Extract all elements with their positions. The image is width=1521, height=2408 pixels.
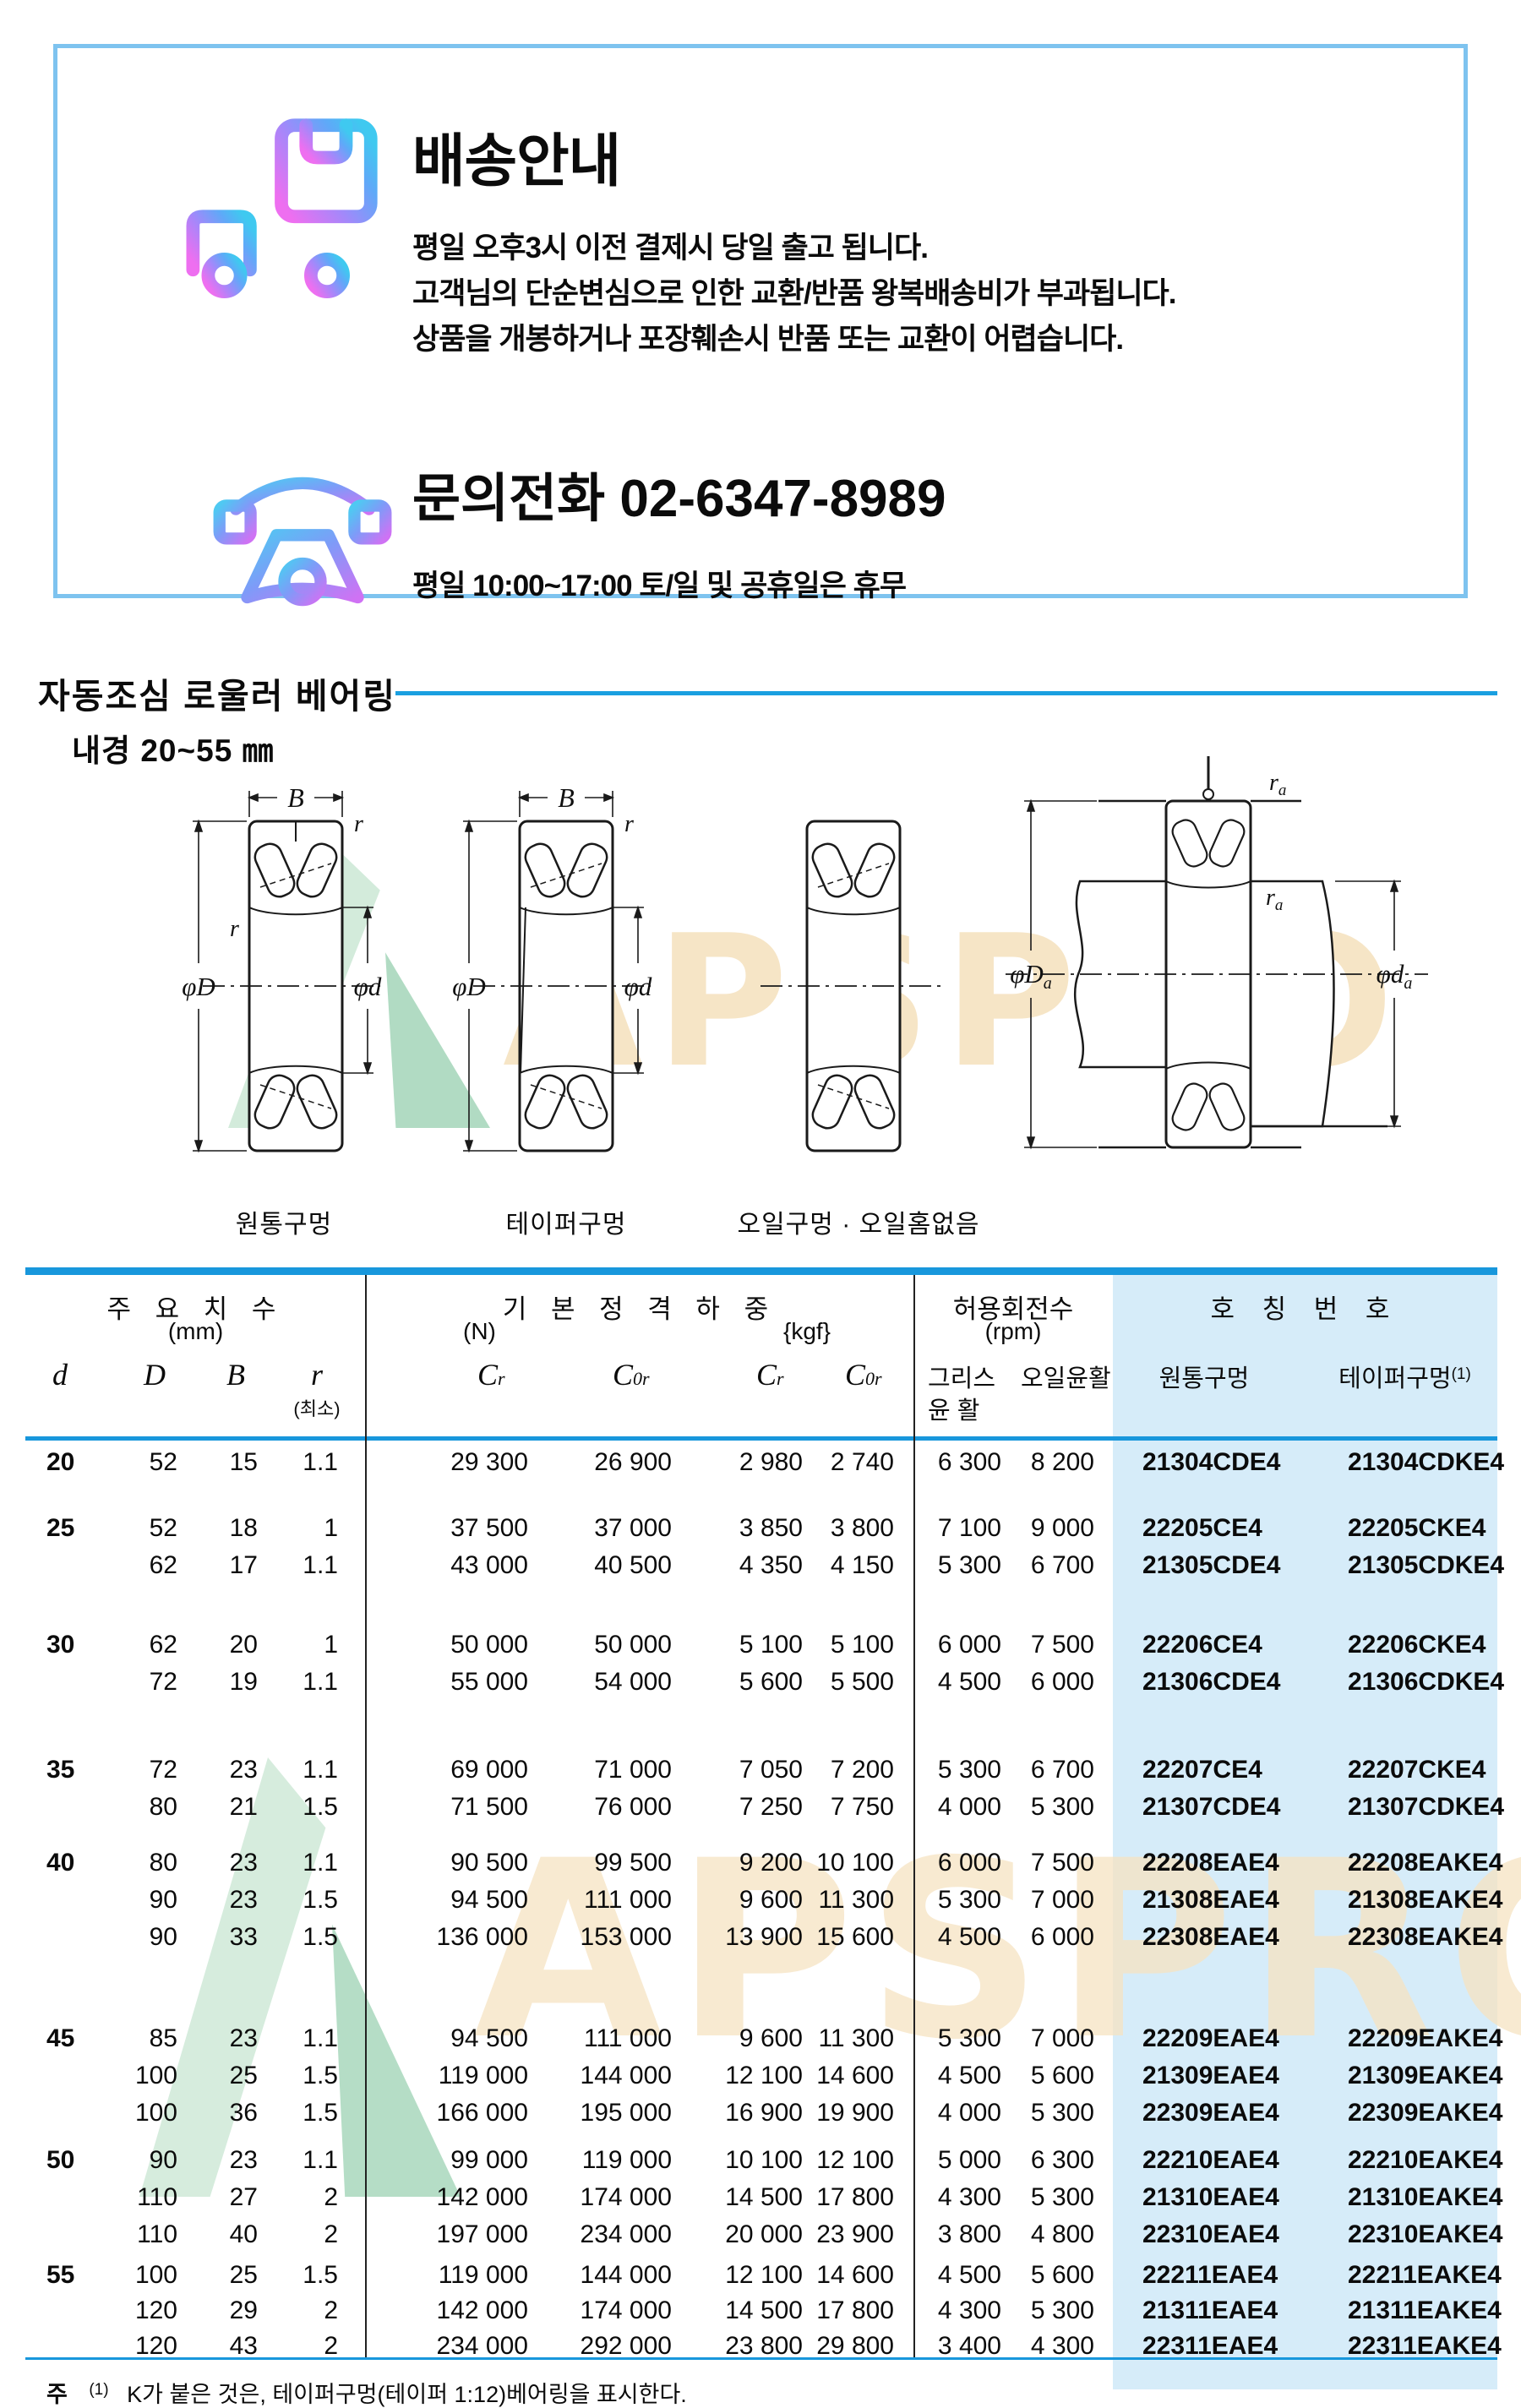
cell-taper: 22309EAKE4 [1348, 2099, 1521, 2127]
cell-B: 40 [165, 2220, 258, 2249]
table-row: 4080231.190 50099 5009 20010 1006 0007 5… [0, 1849, 1521, 1886]
col-symbol-r: r [311, 1357, 323, 1392]
cell-D: 62 [68, 1631, 177, 1659]
cell-cyl: 22206CE4 [1142, 1631, 1337, 1659]
cell-taper: 21307CDKE4 [1348, 1793, 1521, 1822]
cell-D: 52 [68, 1514, 177, 1543]
cell-B: 18 [165, 1514, 258, 1543]
cell-B: 43 [165, 2332, 258, 2361]
cell-D: 100 [68, 2261, 177, 2290]
cell-taper: 21304CDKE4 [1348, 1448, 1521, 1477]
cell-D: 85 [68, 2024, 177, 2053]
cell-cyl: 22208EAE4 [1142, 1849, 1337, 1877]
col-label-cyl-bore: 원통구멍 [1124, 1359, 1284, 1394]
cell-c0r_n: 40 500 [520, 1551, 672, 1580]
cell-D: 90 [68, 1923, 177, 1952]
cell-c0r_kgf: 10 100 [750, 1849, 894, 1877]
table-row: 90331.5136 000153 00013 90015 6004 5006 … [0, 1923, 1521, 1960]
cell-B: 27 [165, 2183, 258, 2212]
cell-D: 90 [68, 2146, 177, 2175]
cell-r: 1.1 [245, 2146, 338, 2175]
cell-oil: 6 000 [976, 1668, 1094, 1697]
table-row: 306220150 00050 0005 1005 1006 0007 5002… [0, 1631, 1521, 1668]
table-row: 4585231.194 500111 0009 60011 3005 3007 … [0, 2024, 1521, 2062]
cell-c0r_n: 37 000 [520, 1514, 672, 1543]
cell-c0r_n: 195 000 [520, 2099, 672, 2127]
cell-r: 1.1 [245, 1849, 338, 1877]
table-row: 72191.155 00054 0005 6005 5004 5006 0002… [0, 1668, 1521, 1705]
cell-cr_n: 43 000 [376, 1551, 528, 1580]
cell-taper: 22207CKE4 [1348, 1756, 1521, 1784]
cell-cyl: 22311EAE4 [1142, 2332, 1337, 2361]
cell-c0r_kgf: 15 600 [750, 1923, 894, 1952]
cell-cyl: 21309EAE4 [1142, 2062, 1337, 2090]
table-row: 2052151.129 30026 9002 9802 7406 3008 20… [0, 1448, 1521, 1485]
table-header-rule [25, 1436, 1497, 1441]
cell-r: 1.5 [245, 1793, 338, 1822]
cell-D: 120 [68, 2296, 177, 2325]
table-row: 255218137 50037 0003 8503 8007 1009 0002… [0, 1514, 1521, 1551]
cell-r: 1.1 [245, 1448, 338, 1477]
header-bearing-no: 호 칭 번 호 [1113, 1288, 1497, 1326]
cell-c0r_n: 119 000 [520, 2146, 672, 2175]
cell-D: 90 [68, 1886, 177, 1915]
cell-D: 62 [68, 1551, 177, 1580]
col-label-grease-2: 윤 활 [928, 1391, 979, 1426]
cell-oil: 9 000 [976, 1514, 1094, 1543]
cell-cr_n: 55 000 [376, 1668, 528, 1697]
cell-B: 23 [165, 1886, 258, 1915]
col-symbol-cr-n: Cr [477, 1357, 505, 1392]
cell-c0r_n: 71 000 [520, 1756, 672, 1784]
cell-oil: 6 700 [976, 1756, 1094, 1784]
cell-cr_n: 50 000 [376, 1631, 528, 1659]
cell-cyl: 21310EAE4 [1142, 2183, 1337, 2212]
col-label-taper-bore: 테이퍼구멍(1) [1314, 1359, 1496, 1394]
cell-oil: 6 700 [976, 1551, 1094, 1580]
cell-D: 80 [68, 1793, 177, 1822]
cell-taper: 21308EAKE4 [1348, 1886, 1521, 1915]
cell-D: 110 [68, 2220, 177, 2249]
cell-D: 52 [68, 1448, 177, 1477]
cell-c0r_kgf: 5 100 [750, 1631, 894, 1659]
cell-c0r_kgf: 3 800 [750, 1514, 894, 1543]
col-label-grease-1: 그리스 [928, 1359, 995, 1394]
cell-oil: 5 300 [976, 2099, 1094, 2127]
cell-cr_n: 234 000 [376, 2332, 528, 2361]
cell-c0r_n: 153 000 [520, 1923, 672, 1952]
cell-B: 25 [165, 2062, 258, 2090]
cell-B: 19 [165, 1668, 258, 1697]
cell-cr_n: 142 000 [376, 2183, 528, 2212]
cell-c0r_n: 76 000 [520, 1793, 672, 1822]
table-row: 62171.143 00040 5004 3504 1505 3006 7002… [0, 1551, 1521, 1588]
cell-oil: 8 200 [976, 1448, 1094, 1477]
cell-c0r_kgf: 11 300 [750, 1886, 894, 1915]
col-symbol-c0r-n: C0r [613, 1357, 650, 1392]
cell-cr_n: 99 000 [376, 2146, 528, 2175]
cell-cr_n: 119 000 [376, 2261, 528, 2290]
cell-B: 29 [165, 2296, 258, 2325]
table-row: 120292142 000174 00014 50017 8004 3005 3… [0, 2296, 1521, 2334]
cell-B: 23 [165, 1849, 258, 1877]
table-row: 5090231.199 000119 00010 10012 1005 0006… [0, 2146, 1521, 2183]
cell-oil: 4 800 [976, 2220, 1094, 2249]
cell-c0r_kgf: 12 100 [750, 2146, 894, 2175]
table-row: 110402197 000234 00020 00023 9003 8004 8… [0, 2220, 1521, 2258]
cell-cyl: 22205CE4 [1142, 1514, 1337, 1543]
cell-B: 21 [165, 1793, 258, 1822]
cell-c0r_kgf: 4 150 [750, 1551, 894, 1580]
cell-taper: 22311EAKE4 [1348, 2332, 1521, 2361]
cell-D: 100 [68, 2062, 177, 2090]
cell-oil: 7 500 [976, 1849, 1094, 1877]
cell-cr_n: 94 500 [376, 1886, 528, 1915]
cell-c0r_n: 144 000 [520, 2261, 672, 2290]
cell-B: 15 [165, 1448, 258, 1477]
cell-r: 1.5 [245, 2261, 338, 2290]
cell-cr_n: 29 300 [376, 1448, 528, 1477]
cell-cyl: 21311EAE4 [1142, 2296, 1337, 2325]
cell-r: 1.1 [245, 1551, 338, 1580]
cell-taper: 22308EAKE4 [1348, 1923, 1521, 1952]
cell-c0r_kgf: 5 500 [750, 1668, 894, 1697]
cell-c0r_kgf: 2 740 [750, 1448, 894, 1477]
col-symbol-c0r-kgf: C0r [845, 1357, 882, 1392]
cell-oil: 7 500 [976, 1631, 1094, 1659]
cell-D: 120 [68, 2332, 177, 2361]
cell-cyl: 22211EAE4 [1142, 2261, 1337, 2290]
footnote-text: K가 붙은 것은, 테이퍼구멍(테이퍼 1:12)베어링을 표시한다. [127, 2382, 687, 2407]
cell-taper: 21306CDKE4 [1348, 1668, 1521, 1697]
cell-cr_n: 136 000 [376, 1923, 528, 1952]
table-row: 100361.5166 000195 00016 90019 9004 0005… [0, 2099, 1521, 2136]
cell-r: 1.1 [245, 2024, 338, 2053]
cell-cyl: 21306CDE4 [1142, 1668, 1337, 1697]
cell-c0r_n: 26 900 [520, 1448, 672, 1477]
cell-B: 17 [165, 1551, 258, 1580]
cell-taper: 22206CKE4 [1348, 1631, 1521, 1659]
cell-r: 1.1 [245, 1668, 338, 1697]
cell-cyl: 21308EAE4 [1142, 1886, 1337, 1915]
cell-taper: 22211EAKE4 [1348, 2261, 1521, 2290]
cell-cyl: 21305CDE4 [1142, 1551, 1337, 1580]
cell-c0r_n: 111 000 [520, 1886, 672, 1915]
cell-r: 2 [245, 2183, 338, 2212]
cell-cr_n: 166 000 [376, 2099, 528, 2127]
cell-taper: 22210EAKE4 [1348, 2146, 1521, 2175]
cell-c0r_n: 174 000 [520, 2183, 672, 2212]
cell-r: 1 [245, 1631, 338, 1659]
cell-taper: 21305CDKE4 [1348, 1551, 1521, 1580]
cell-D: 100 [68, 2099, 177, 2127]
footnote-ref: (1) [89, 2381, 108, 2399]
cell-D: 110 [68, 2183, 177, 2212]
cell-B: 23 [165, 2146, 258, 2175]
cell-c0r_n: 111 000 [520, 2024, 672, 2053]
cell-taper: 22310EAKE4 [1348, 2220, 1521, 2249]
col-symbol-B: B [226, 1357, 245, 1392]
cell-c0r_kgf: 7 750 [750, 1793, 894, 1822]
cell-c0r_kgf: 14 600 [750, 2261, 894, 2290]
cell-r: 1.5 [245, 2099, 338, 2127]
cell-c0r_kgf: 17 800 [750, 2296, 894, 2325]
page: 배송안내 평일 오후3시 이전 결제시 당일 출고 됩니다. 고객님의 단순변심… [0, 0, 1521, 2408]
cell-r: 1.5 [245, 1923, 338, 1952]
cell-B: 33 [165, 1923, 258, 1952]
cell-taper: 22209EAKE4 [1348, 2024, 1521, 2053]
cell-oil: 5 300 [976, 1793, 1094, 1822]
cell-r: 2 [245, 2296, 338, 2325]
cell-D: 72 [68, 1668, 177, 1697]
cell-taper: 21310EAKE4 [1348, 2183, 1521, 2212]
cell-cyl: 22308EAE4 [1142, 1923, 1337, 1952]
header-unit-n: (N) [463, 1318, 496, 1345]
col-symbol-D: D [144, 1357, 166, 1392]
cell-cyl: 22209EAE4 [1142, 2024, 1337, 2053]
cell-cr_n: 37 500 [376, 1514, 528, 1543]
table-row: 3572231.169 00071 0007 0507 2005 3006 70… [0, 1756, 1521, 1793]
cell-cyl: 22309EAE4 [1142, 2099, 1337, 2127]
table-row: 80211.571 50076 0007 2507 7504 0005 3002… [0, 1793, 1521, 1830]
cell-oil: 4 300 [976, 2332, 1094, 2361]
cell-B: 36 [165, 2099, 258, 2127]
cell-c0r_n: 50 000 [520, 1631, 672, 1659]
table-row: 55100251.5119 000144 00012 10014 6004 50… [0, 2261, 1521, 2298]
col-label-oil: 오일윤활 [1021, 1359, 1111, 1394]
cell-cyl: 21307CDE4 [1142, 1793, 1337, 1822]
cell-r: 1.1 [245, 1756, 338, 1784]
cell-r: 2 [245, 2332, 338, 2361]
cell-cyl: 21304CDE4 [1142, 1448, 1337, 1477]
cell-oil: 6 300 [976, 2146, 1094, 2175]
cell-oil: 7 000 [976, 2024, 1094, 2053]
cell-c0r_kgf: 17 800 [750, 2183, 894, 2212]
cell-cyl: 22210EAE4 [1142, 2146, 1337, 2175]
footnote-mark: 주 [46, 2382, 68, 2407]
col-symbol-d: d [52, 1357, 68, 1392]
cell-cr_n: 197 000 [376, 2220, 528, 2249]
header-speed-unit: (rpm) [913, 1318, 1113, 1345]
cell-cyl: 22207CE4 [1142, 1756, 1337, 1784]
table-layer: 주 요 치 수 (mm) 기 본 정 격 하 중 (N) {kgf} 허용회전수… [0, 0, 1521, 2408]
cell-oil: 7 000 [976, 1886, 1094, 1915]
cell-cyl: 22310EAE4 [1142, 2220, 1337, 2249]
table-row: 100251.5119 000144 00012 10014 6004 5005… [0, 2062, 1521, 2099]
cell-r: 2 [245, 2220, 338, 2249]
cell-cr_n: 90 500 [376, 1849, 528, 1877]
cell-c0r_n: 174 000 [520, 2296, 672, 2325]
table-row: 90231.594 500111 0009 60011 3005 3007 00… [0, 1886, 1521, 1923]
table-row: 110272142 000174 00014 50017 8004 3005 3… [0, 2183, 1521, 2220]
header-unit-kgf: {kgf} [760, 1318, 853, 1345]
cell-D: 80 [68, 1849, 177, 1877]
cell-oil: 5 600 [976, 2261, 1094, 2290]
cell-c0r_kgf: 11 300 [750, 2024, 894, 2053]
table-row: 120432234 000292 00023 80029 8003 4004 3… [0, 2332, 1521, 2369]
footnote: 주 (1) K가 붙은 것은, 테이퍼구멍(테이퍼 1:12)베어링을 표시한다… [46, 2376, 687, 2408]
cell-r: 1.5 [245, 1886, 338, 1915]
cell-c0r_n: 54 000 [520, 1668, 672, 1697]
cell-oil: 5 600 [976, 2062, 1094, 2090]
cell-cr_n: 142 000 [376, 2296, 528, 2325]
cell-taper: 21309EAKE4 [1348, 2062, 1521, 2090]
cell-c0r_n: 292 000 [520, 2332, 672, 2361]
cell-c0r_n: 144 000 [520, 2062, 672, 2090]
cell-cr_n: 69 000 [376, 1756, 528, 1784]
cell-cr_n: 119 000 [376, 2062, 528, 2090]
cell-taper: 22205CKE4 [1348, 1514, 1521, 1543]
cell-oil: 5 300 [976, 2183, 1094, 2212]
cell-B: 23 [165, 1756, 258, 1784]
cell-cr_n: 94 500 [376, 2024, 528, 2053]
cell-taper: 22208EAKE4 [1348, 1849, 1521, 1877]
cell-oil: 6 000 [976, 1923, 1094, 1952]
cell-B: 23 [165, 2024, 258, 2053]
cell-c0r_kgf: 29 800 [750, 2332, 894, 2361]
cell-oil: 5 300 [976, 2296, 1094, 2325]
cell-B: 20 [165, 1631, 258, 1659]
col-label-r-min: (최소) [270, 1394, 363, 1421]
cell-c0r_n: 234 000 [520, 2220, 672, 2249]
cell-c0r_n: 99 500 [520, 1849, 672, 1877]
cell-c0r_kgf: 19 900 [750, 2099, 894, 2127]
cell-r: 1.5 [245, 2062, 338, 2090]
col-symbol-cr-kgf: Cr [756, 1357, 784, 1392]
cell-c0r_kgf: 14 600 [750, 2062, 894, 2090]
cell-r: 1 [245, 1514, 338, 1543]
cell-taper: 21311EAKE4 [1348, 2296, 1521, 2325]
table-top-rule [25, 1267, 1497, 1275]
cell-c0r_kgf: 7 200 [750, 1756, 894, 1784]
cell-B: 25 [165, 2261, 258, 2290]
header-main-dims-unit: (mm) [25, 1318, 366, 1345]
cell-cr_n: 71 500 [376, 1793, 528, 1822]
cell-D: 72 [68, 1756, 177, 1784]
cell-c0r_kgf: 23 900 [750, 2220, 894, 2249]
